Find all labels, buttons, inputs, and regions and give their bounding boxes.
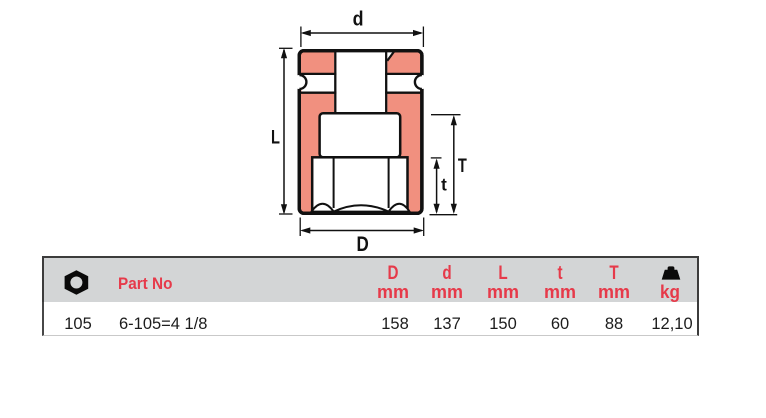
svg-text:L: L [271,126,280,149]
svg-text:D: D [356,233,368,256]
svg-text:T: T [458,155,467,176]
svg-text:t: t [441,174,447,195]
svg-text:d: d [353,9,364,31]
